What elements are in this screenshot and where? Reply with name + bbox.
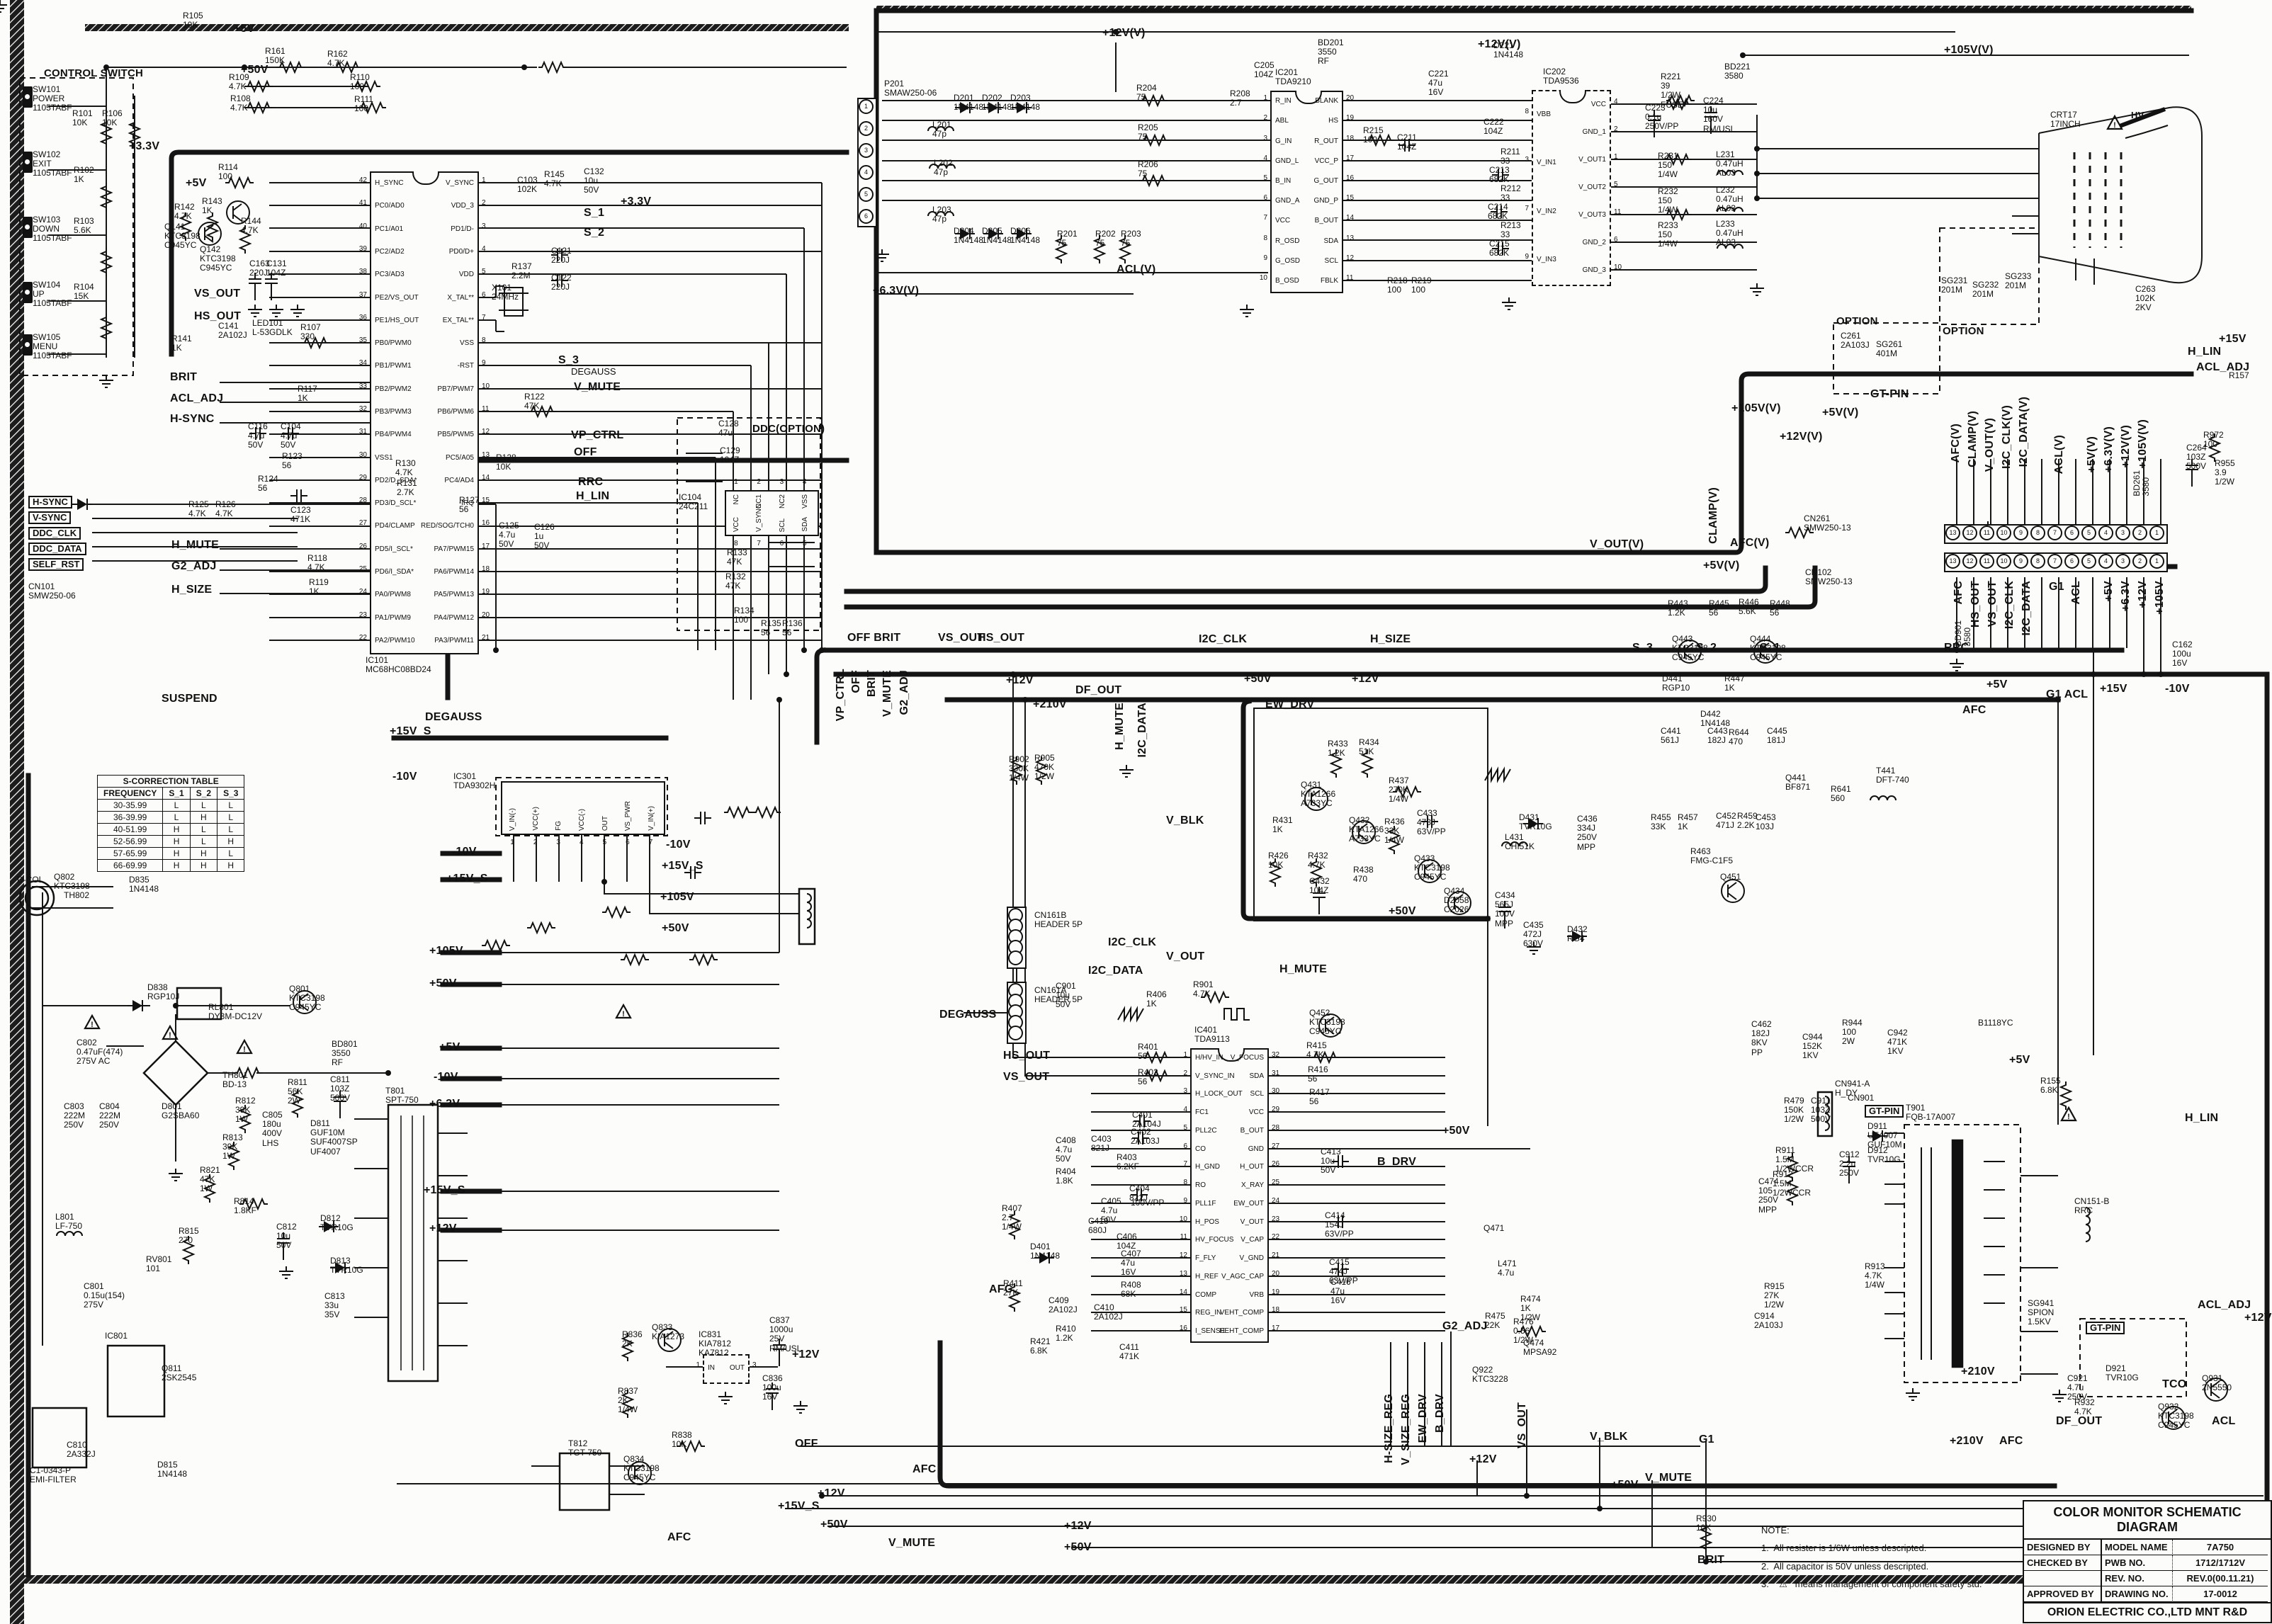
schematic-label: +12V bbox=[1352, 673, 1379, 686]
ic-pin-number: 25 bbox=[1272, 1179, 1289, 1186]
schematic-label: C837 1000u 25V RM/USL bbox=[769, 1316, 801, 1353]
ic-pin-number: 5 bbox=[1170, 1125, 1187, 1132]
ic-pin: H_LOCK_OUT bbox=[1195, 1091, 1243, 1098]
schematic-label: S_1 bbox=[584, 207, 604, 220]
ic-pin-number: 11 bbox=[1614, 209, 1631, 216]
ic-IC101: H_SYNC42PC0/AD041PC1/A0140PC2/AD239PC3/A… bbox=[370, 171, 479, 654]
schematic-label: R475 22K bbox=[1485, 1312, 1505, 1330]
schematic-label: Q922 KTC3228 bbox=[1472, 1365, 1508, 1384]
ic-pin-number: 9 bbox=[482, 360, 499, 367]
ic-pin: PD5/I_SCL* bbox=[375, 546, 413, 553]
ic-pin: PE2/VS_OUT bbox=[375, 295, 419, 302]
ic-notch bbox=[412, 171, 439, 185]
schematic-label: VP_CTRL bbox=[835, 669, 847, 721]
ic-pin-number: 39 bbox=[350, 246, 367, 253]
connector-pin: 5 bbox=[2081, 554, 2096, 569]
schematic-label: C162 100u 16V bbox=[2172, 640, 2193, 669]
schematic-label: C811 103Z 500V bbox=[330, 1075, 350, 1103]
schematic-label: CLAMP(V) bbox=[1707, 487, 1720, 544]
ic-pin-number: 17 bbox=[1272, 1325, 1289, 1332]
ic-pin: G_OSD bbox=[1275, 258, 1300, 265]
ic-pin-number: 4 bbox=[580, 839, 584, 846]
schematic-label: Q801 KTC3198 C945YC bbox=[289, 984, 325, 1013]
ic-pin-number: 34 bbox=[350, 360, 367, 367]
schematic-label: C125 4.7u 50V bbox=[499, 521, 519, 550]
schematic-label: SELF_RST bbox=[28, 558, 84, 571]
schematic-label: C215 682K bbox=[1489, 239, 1510, 258]
ic-pin: V_SYNC bbox=[756, 504, 763, 532]
schematic-label: SUSPEND bbox=[162, 693, 217, 705]
schematic-label: +50V bbox=[429, 977, 457, 990]
schematic-label: C410 2A102J bbox=[1094, 1303, 1123, 1322]
ic-pin: SCL bbox=[1325, 258, 1338, 265]
schematic-label: R162 4.7K bbox=[327, 50, 348, 68]
schematic-label: P201 SMAW250-06 bbox=[884, 79, 937, 98]
ic-pin: NC2 bbox=[779, 494, 786, 509]
schematic-label: EW_DRV bbox=[1417, 1394, 1430, 1443]
schematic-label: R813 39K 1W bbox=[222, 1133, 243, 1162]
schematic-label: BD261 3580 bbox=[2132, 470, 2151, 496]
schematic-label: R445 56 bbox=[1709, 599, 1729, 618]
schematic-label: X101 24MHz bbox=[492, 283, 519, 302]
schematic-label: ACL bbox=[2212, 1415, 2235, 1428]
schematic-label: C435 472J 630V bbox=[1523, 921, 1544, 949]
schematic-label: D812 TVR10G bbox=[320, 1214, 354, 1232]
schematic-label: R902 330K 1/4W bbox=[1009, 755, 1029, 783]
schematic-label: +12V(V) bbox=[1102, 27, 1146, 40]
ic-pin-number: 16 bbox=[482, 520, 499, 527]
connector-pin: 9 bbox=[2013, 526, 2028, 540]
ic-pin: H_SYNC bbox=[375, 180, 404, 187]
ic-IC301: V_IN(-)1VCC(+)2FG3VCC(-)4OUT5VS_PWR6V_IN… bbox=[501, 781, 665, 835]
ic-pin-number: 7 bbox=[1250, 215, 1267, 222]
schematic-label: C419 680J bbox=[1088, 1217, 1109, 1235]
schematic-label: R459 2.2K bbox=[1737, 812, 1758, 830]
schematic-label: H-SYNC bbox=[170, 413, 215, 426]
ic-pin-number: 1 bbox=[1250, 95, 1267, 102]
schematic-label: +50V bbox=[1244, 673, 1272, 686]
schematic-label: L231 0.47uH AL03 bbox=[1716, 150, 1743, 178]
schematic-label: R838 10K bbox=[672, 1431, 692, 1449]
schematic-label: C408 4.7u 50V bbox=[1056, 1136, 1076, 1164]
schematic-label: R812 39K 1W bbox=[235, 1096, 256, 1125]
ic-pin-number: 11 bbox=[1346, 275, 1363, 282]
schematic-label: R416 56 bbox=[1308, 1065, 1328, 1084]
ic-pin: GND_L bbox=[1275, 158, 1299, 165]
schematic-label: R213 33 bbox=[1500, 221, 1521, 239]
schematic-label: C944 152K 1KV bbox=[1802, 1033, 1823, 1061]
ic-pin-number: 10 bbox=[482, 383, 499, 390]
schematic-label: R136 56 bbox=[782, 619, 803, 637]
schematic-label: +5V bbox=[2103, 581, 2115, 602]
schematic-label: IC801 bbox=[105, 1331, 128, 1341]
ic-pin-number: 28 bbox=[1272, 1125, 1289, 1132]
schematic-label: -10V bbox=[452, 846, 477, 858]
schematic-label: H_MUTE bbox=[1279, 963, 1327, 976]
schematic-label: C104 4.7u 50V bbox=[281, 422, 301, 450]
schematic-label: R107 330 bbox=[300, 323, 321, 341]
schematic-label: R415 4.7K bbox=[1306, 1041, 1327, 1060]
schematic-label: +50V bbox=[820, 1518, 848, 1531]
schematic-label: C205 104Z bbox=[1254, 61, 1275, 79]
ic-pin: G_OUT bbox=[1314, 178, 1338, 185]
ic-pin: G_IN bbox=[1275, 138, 1292, 145]
schematic-label: D921 TVR10G bbox=[2106, 1364, 2139, 1382]
schematic-label: R104 15K bbox=[74, 283, 94, 301]
ic-pin-number: 7 bbox=[1512, 205, 1529, 212]
ic-pin: PB4/PWM4 bbox=[375, 431, 412, 438]
schematic-label: S_3 bbox=[558, 354, 579, 367]
ic-pin-number: 26 bbox=[350, 543, 367, 550]
ic-pin-number: 5 bbox=[803, 540, 807, 547]
schematic-label: L801 LF-750 bbox=[55, 1213, 82, 1231]
schematic-label: C445 181J bbox=[1767, 727, 1787, 745]
connector-pin: 8 bbox=[2030, 554, 2045, 569]
ic-pin-number: 17 bbox=[1346, 155, 1363, 162]
schematic-label: -10V bbox=[434, 1071, 458, 1084]
schematic-label: C121 220J bbox=[551, 246, 572, 265]
title-block-cell: MODEL NAME bbox=[2101, 1540, 2173, 1555]
ic-pin: VSS bbox=[802, 494, 809, 509]
schematic-label: DDC(OPTION) bbox=[752, 424, 825, 436]
schematic-label: Q474 MPSA92 bbox=[1523, 1339, 1556, 1357]
schematic-label: Q931 2N5550 bbox=[2202, 1374, 2232, 1392]
switch-label: SW102 EXIT 1105TABF bbox=[33, 150, 72, 178]
schematic-label: Q833 KIA1273 bbox=[652, 1323, 684, 1341]
ic-ref-label: IC104 24C211 bbox=[679, 493, 708, 511]
schematic-label: C914 2A103J bbox=[1754, 1312, 1783, 1330]
schematic-label: V-SYNC bbox=[28, 511, 71, 524]
ic-pin: H_REF bbox=[1195, 1273, 1219, 1281]
schematic-label: C411 471K bbox=[1119, 1343, 1139, 1361]
schematic-label: R143 1K bbox=[202, 197, 222, 215]
schematic-label: R955 3.9 1/2W bbox=[2215, 459, 2235, 487]
schematic-label: H_LIN bbox=[2188, 346, 2221, 358]
schematic-label: +3.3V bbox=[621, 195, 651, 208]
ic-pin-number: 3 bbox=[482, 223, 499, 230]
schematic-label: +15V_S bbox=[424, 1184, 465, 1197]
switch-glyph[interactable] bbox=[23, 86, 33, 108]
ic-pin-number: 11 bbox=[482, 406, 499, 413]
ic-pin-number: 1 bbox=[683, 1362, 700, 1369]
schematic-label: +12V(V) bbox=[2120, 425, 2132, 468]
schematic-label: GT-PIN bbox=[2086, 1322, 2125, 1334]
ic-pin: SCL bbox=[779, 518, 786, 532]
ic-pin: HS bbox=[1328, 118, 1338, 125]
ic-pin: GND bbox=[1248, 1146, 1264, 1153]
title-block-cell: APPROVED BY bbox=[2024, 1586, 2101, 1602]
connector-pin: 7 bbox=[2047, 554, 2062, 569]
connector-pin: 8 bbox=[2030, 526, 2045, 540]
schematic-label: D205 1N4148 bbox=[982, 227, 1012, 245]
schematic-label: C802 0.47uF(474) 275V AC bbox=[77, 1038, 123, 1067]
schematic-label: G1 bbox=[1699, 1433, 1714, 1446]
schematic-label: +12V bbox=[429, 1222, 457, 1235]
ic-pin-number: 4 bbox=[482, 246, 499, 253]
switch-glyph[interactable] bbox=[23, 217, 33, 238]
schematic-label: ACL(V) bbox=[2053, 435, 2066, 474]
schematic-label: +5V bbox=[1986, 678, 2008, 691]
ic-pin: V_IN2 bbox=[1537, 208, 1556, 215]
switch-glyph[interactable] bbox=[23, 152, 33, 173]
schematic-label: C434 565J 100V MPP bbox=[1495, 891, 1515, 929]
ic-ref-label: IC401 TDA9113 bbox=[1194, 1026, 1230, 1044]
ic-pin: VCC bbox=[1275, 217, 1290, 225]
schematic-label: BRIT bbox=[866, 670, 878, 697]
title-block-cell: REV. NO. bbox=[2101, 1571, 2173, 1586]
ic-pin: FBLK bbox=[1321, 278, 1338, 285]
schematic-label: R111 100 bbox=[354, 95, 373, 113]
schematic-label: R930 10K bbox=[1696, 1514, 1717, 1533]
ic-ref-label: IC201 TDA9210 bbox=[1275, 68, 1311, 86]
schematic-label: H_LIN bbox=[576, 490, 609, 503]
schematic-label: C222 104Z bbox=[1483, 118, 1504, 136]
ic-pin-number: 24 bbox=[350, 589, 367, 596]
schematic-label: R110 100 bbox=[350, 73, 370, 91]
schematic-label: SG233 201M bbox=[2005, 272, 2031, 290]
schematic-label: R432 4.7K bbox=[1308, 851, 1328, 870]
schematic-label: ACL_ADJ bbox=[2198, 1299, 2251, 1312]
schematic-label: C131 104Z bbox=[266, 259, 287, 278]
ic-pin: V_GND bbox=[1240, 1255, 1264, 1262]
schematic-label: TCO bbox=[2162, 1378, 2186, 1391]
ic-pin-number: 6 bbox=[626, 839, 630, 846]
schematic-label: R446 5.6K bbox=[1739, 598, 1759, 616]
connector-pin: 6 bbox=[2064, 554, 2079, 569]
schematic-label: OFF bbox=[574, 446, 597, 459]
connector-pin bbox=[1008, 1026, 1023, 1040]
schematic-label: R144 4.7K bbox=[241, 217, 261, 235]
ic-pin: PLL2C bbox=[1195, 1128, 1217, 1135]
ic-pin: V_IN1 bbox=[1537, 159, 1556, 166]
schematic-label: I2C_DATA(V) bbox=[2018, 397, 2030, 467]
schematic-label: +105V bbox=[660, 891, 694, 904]
switch-label: SW105 MENU 1105TABF bbox=[33, 333, 72, 361]
ic-IC202: VBB8V_IN13V_IN27V_IN39VCC4GND_12V_OUT11V… bbox=[1532, 90, 1611, 286]
connector-pin: 1 bbox=[2149, 554, 2164, 569]
ic-pin: H/HV_IN bbox=[1195, 1055, 1223, 1062]
schematic-label: C402 2A103J bbox=[1131, 1128, 1160, 1146]
title-block-footer: ORION ELECTRIC CO.,LTD MNT R&D bbox=[2024, 1602, 2271, 1622]
ic-pin: V_IN3 bbox=[1537, 256, 1556, 263]
ic-pin: VCC bbox=[1249, 1109, 1264, 1116]
ic-IC104: NC1NC12NC23VSS4VCC8V_SYNC7SCL6SDA5 bbox=[725, 490, 819, 536]
schematic-label: B_DRV bbox=[1434, 1394, 1447, 1433]
schematic-label: AFC bbox=[912, 1463, 936, 1476]
ic-pin-number: 3 bbox=[556, 839, 560, 846]
ic-pin-number: 6 bbox=[1170, 1143, 1187, 1150]
schematic-label: R201 75 bbox=[1057, 229, 1078, 248]
ic-pin: VBB bbox=[1537, 111, 1551, 118]
schematic-label: BRIT bbox=[1697, 1554, 1724, 1567]
schematic-label: C803 222M 250V bbox=[64, 1102, 85, 1130]
schematic-label: D203 1N4148 bbox=[1010, 93, 1040, 112]
schematic-label: +5V bbox=[439, 1041, 460, 1054]
ic-pin-number: 27 bbox=[350, 520, 367, 527]
ic-pin: PC0/AD0 bbox=[375, 203, 405, 210]
ic-pin: H_GND bbox=[1195, 1164, 1220, 1171]
schematic-label: DF_OUT bbox=[1075, 684, 1121, 697]
schematic-label: R408 68K bbox=[1121, 1281, 1141, 1299]
ic-pin-number: 31 bbox=[350, 428, 367, 436]
ic-pin: PE1/HS_OUT bbox=[375, 317, 419, 324]
schematic-label: R132 47K bbox=[725, 572, 746, 591]
schematic-label: R211 33 bbox=[1500, 147, 1520, 166]
ic-IC401: H/HV_IN1V_SYNC_IN2H_LOCK_OUT3FC14PLL2C5C… bbox=[1190, 1048, 1269, 1343]
ic-pin-number: 16 bbox=[1346, 175, 1363, 182]
schematic-label: R155 6.8K bbox=[2040, 1077, 2061, 1095]
connector-pin: 2 bbox=[2132, 526, 2147, 540]
schematic-label: R821 47K 1W bbox=[200, 1166, 220, 1194]
schematic-label: +12V(V) bbox=[1478, 38, 1521, 51]
schematic-label: R157 bbox=[2229, 371, 2249, 380]
ic-pin: FG bbox=[555, 821, 563, 831]
switch-glyph[interactable] bbox=[23, 282, 33, 303]
schematic-label: D-COL bbox=[17, 875, 43, 885]
ic-pin: GND_A bbox=[1275, 198, 1299, 205]
ic-pin-number: 2 bbox=[1250, 115, 1267, 122]
ic-pin-number: 13 bbox=[1346, 235, 1363, 242]
schematic-label: +6.3V bbox=[429, 1098, 460, 1111]
schematic-label: R127 56 bbox=[459, 496, 480, 514]
schematic-label: R137 2.2M bbox=[512, 262, 532, 280]
schematic-label: R433 1.2K bbox=[1328, 739, 1348, 758]
connector-pin: 6 bbox=[2064, 526, 2079, 540]
schematic-label: Q471 bbox=[1483, 1224, 1504, 1233]
schematic-label: C413 10u 50V bbox=[1321, 1147, 1341, 1176]
schematic-label: R406 1K bbox=[1146, 990, 1167, 1009]
schematic-label: C129 104Z bbox=[720, 446, 740, 465]
ic-ref-label: IC301 TDA9302H bbox=[453, 772, 495, 790]
schematic-label: +50V bbox=[662, 922, 689, 935]
ic-pin-number: 2 bbox=[1170, 1070, 1187, 1077]
notes-block: NOTE: 1. All resister is 1/6W unless des… bbox=[1761, 1521, 1982, 1593]
schematic-label: R123 56 bbox=[282, 452, 303, 470]
schematic-label: C223 0.1u 250V/PP bbox=[1645, 103, 1678, 132]
ic-pin: HV_FOCUS bbox=[1195, 1237, 1233, 1244]
ic-pin: ABL bbox=[1275, 118, 1289, 125]
ic-pin-number: 1 bbox=[1170, 1052, 1187, 1059]
schematic-label: R401 56 bbox=[1138, 1043, 1158, 1061]
schematic-label: C414 154J 63V/PP bbox=[1325, 1211, 1354, 1239]
schematic-label: L431 CHI51K bbox=[1505, 833, 1535, 851]
ic-pin-number: 12 bbox=[1346, 255, 1363, 262]
schematic-label: C211 104Z bbox=[1397, 133, 1417, 152]
schematic-label: +15V_S bbox=[446, 873, 488, 885]
schematic-label: ACL bbox=[2070, 581, 2083, 604]
ic-pin: H_POS bbox=[1195, 1219, 1219, 1226]
connector-pin: 1 bbox=[859, 99, 874, 114]
schematic-label: AFC(V) bbox=[1950, 424, 1962, 462]
schematic-label: R124 56 bbox=[258, 475, 278, 493]
ic-pin-number: 8 bbox=[734, 540, 738, 547]
ic-pin-number: 29 bbox=[1272, 1106, 1289, 1113]
schematic-label: GT-PIN bbox=[1865, 1105, 1904, 1118]
schematic-label: CN901 bbox=[1848, 1094, 1874, 1103]
switch-glyph[interactable] bbox=[23, 334, 33, 356]
schematic-label: D204 1N4148 bbox=[954, 227, 983, 245]
schematic-label: TH802 bbox=[64, 891, 89, 900]
ic-pin-number: 14 bbox=[482, 475, 499, 482]
ic-pin-number: 18 bbox=[482, 566, 499, 573]
schematic-label: R219 100 bbox=[1411, 276, 1432, 295]
schematic-label: R108 4.7K bbox=[230, 94, 251, 113]
title-block-cell: 17-0012 bbox=[2173, 1586, 2268, 1602]
ic-pin: REG_IN bbox=[1195, 1310, 1221, 1317]
ic-pin-number: 1 bbox=[1614, 154, 1631, 161]
schematic-label: +12V bbox=[2137, 581, 2149, 608]
ic-pin-number: 24 bbox=[1272, 1198, 1289, 1205]
ic-pin: R_IN bbox=[1275, 98, 1292, 105]
schematic-label: C436 334J 250V MPP bbox=[1577, 814, 1598, 852]
ic-pin-number: 22 bbox=[350, 635, 367, 642]
ic-pin: V_IN(-) bbox=[509, 808, 516, 831]
schematic-label: R421 6.8K bbox=[1030, 1337, 1051, 1356]
schematic-label: V_SIZE_REG bbox=[1400, 1394, 1413, 1465]
schematic-label: R131 2.7K bbox=[397, 479, 417, 497]
schematic-label: I2C_CLK bbox=[2003, 581, 2016, 629]
schematic-label: OFF BRIT bbox=[847, 632, 900, 645]
schematic-label: B1118YC bbox=[1978, 1018, 2013, 1028]
ic-pin-number: 28 bbox=[350, 497, 367, 504]
schematic-label: VS_OUT bbox=[1986, 581, 1999, 627]
ic-pin: GND_3 bbox=[1583, 267, 1606, 274]
schematic-label: C804 222M 250V bbox=[99, 1102, 120, 1130]
ic-pin: PB3/PWM3 bbox=[375, 409, 412, 416]
schematic-label: R436 33K 1/4W bbox=[1384, 817, 1405, 846]
schematic-label: +105V(V) bbox=[1731, 402, 1781, 415]
ic-pin-number: 35 bbox=[350, 337, 367, 344]
schematic-label: H_MUTE bbox=[1114, 703, 1126, 750]
schematic-label: +12V bbox=[2244, 1312, 2272, 1324]
schematic-label: +6.3V bbox=[2120, 581, 2132, 611]
schematic-label: H_SIZE bbox=[171, 584, 212, 596]
ic-pin-number: 9 bbox=[1170, 1198, 1187, 1205]
ic-pin-number: 18 bbox=[1272, 1307, 1289, 1314]
schematic-label: H-SYNC bbox=[28, 496, 72, 509]
ic-pin-number: 1 bbox=[510, 839, 514, 846]
ic-pin: H_OUT bbox=[1240, 1164, 1264, 1171]
schematic-label: G1 bbox=[2049, 581, 2064, 594]
title-block-cell: DRAWING NO. bbox=[2101, 1586, 2173, 1602]
ic-IC201: R_IN1ABL2G_IN3GND_L4B_IN5GND_A6VCC7R_OSD… bbox=[1270, 91, 1343, 293]
connector-pin: 3 bbox=[2115, 554, 2130, 569]
schematic-label: T812 TGT-750 bbox=[568, 1439, 601, 1458]
schematic-label: R915 27K 1/2W bbox=[1764, 1282, 1785, 1310]
schematic-label: V_OUT(V) bbox=[1984, 418, 1996, 472]
schematic-label: +3.3V bbox=[129, 140, 159, 153]
schematic-label: R434 51K bbox=[1359, 738, 1379, 756]
schematic-label: R932 4.7K bbox=[2074, 1398, 2095, 1416]
schematic-label: R202 75 bbox=[1095, 229, 1116, 248]
schematic-label: R644 470 bbox=[1729, 728, 1749, 746]
ic-pin: V_OUT3 bbox=[1578, 212, 1606, 219]
schematic-label: CN261 SMW250-13 bbox=[1804, 514, 1851, 533]
ic-pin: V_CAP bbox=[1240, 1237, 1264, 1244]
ic-pin: RO bbox=[1195, 1182, 1206, 1189]
schematic-label: +50V bbox=[1064, 1541, 1092, 1554]
ic-pin: NC bbox=[733, 494, 740, 504]
ic-pin-number: 23 bbox=[1272, 1216, 1289, 1223]
schematic-label: +12V bbox=[1006, 674, 1034, 687]
schematic-label: R203 75 bbox=[1121, 229, 1141, 248]
schematic-label: +15V bbox=[2219, 333, 2246, 346]
ic-pin-number: 36 bbox=[350, 314, 367, 322]
schematic-label: SG231 201M bbox=[1941, 276, 1967, 295]
schematic-label: C128 47u bbox=[718, 419, 739, 438]
schematic-label: DDC_CLK bbox=[28, 527, 81, 540]
ic-pin: X_TAL** bbox=[447, 295, 474, 302]
